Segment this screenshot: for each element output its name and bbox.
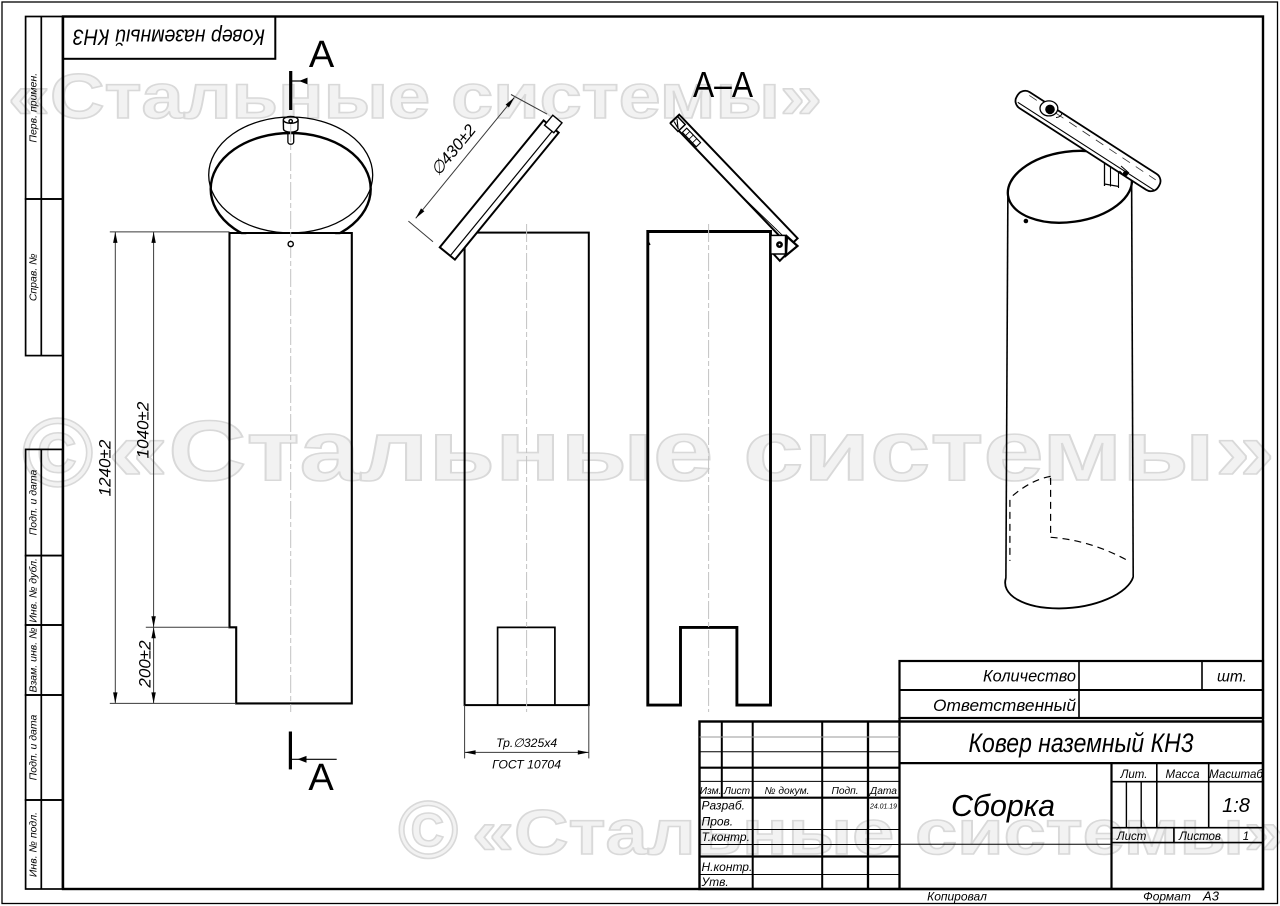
svg-text:1040±2: 1040±2: [134, 401, 153, 458]
svg-text:Инв. № дубл.: Инв. № дубл.: [27, 558, 39, 623]
svg-text:«Стальные системы»: «Стальные системы»: [108, 404, 1275, 499]
svg-text:Формат: Формат: [1143, 890, 1191, 904]
svg-text:Инв. № подл.: Инв. № подл.: [27, 812, 39, 877]
svg-text:Н.контр.: Н.контр.: [702, 860, 753, 874]
svg-text:Количество: Количество: [983, 667, 1076, 686]
svg-text:Утв.: Утв.: [701, 875, 729, 889]
svg-text:Справ. №: Справ. №: [27, 253, 39, 301]
svg-text:1: 1: [1243, 831, 1249, 843]
svg-text:1:8: 1:8: [1222, 795, 1250, 817]
svg-text:Дата: Дата: [869, 786, 897, 797]
svg-text:1240±2: 1240±2: [96, 439, 115, 496]
svg-text:©: ©: [398, 785, 458, 876]
svg-text:Копировал: Копировал: [927, 890, 987, 904]
svg-text:ГОСТ 10704: ГОСТ 10704: [492, 758, 561, 772]
svg-text:24.01.19: 24.01.19: [869, 802, 897, 811]
svg-text:Изм.: Изм.: [700, 786, 722, 797]
svg-text:Лит.: Лит.: [1120, 769, 1148, 781]
svg-text:Сборка: Сборка: [951, 788, 1055, 823]
svg-text:Ковер наземный КН3: Ковер наземный КН3: [969, 728, 1194, 758]
svg-text:Тр.∅325х4: Тр.∅325х4: [496, 736, 557, 750]
svg-text:Масса: Масса: [1165, 769, 1199, 781]
svg-text:Листов: Листов: [1178, 831, 1221, 843]
svg-text:Т.контр.: Т.контр.: [702, 830, 750, 844]
svg-text:А: А: [308, 757, 334, 799]
svg-text:Подп. и дата: Подп. и дата: [27, 714, 39, 780]
svg-text:шт.: шт.: [1217, 669, 1247, 686]
svg-text:Масштаб: Масштаб: [1209, 769, 1263, 781]
svg-text:Лист: Лист: [1116, 831, 1147, 843]
svg-text:Ковер наземный КН3: Ковер наземный КН3: [72, 25, 265, 50]
svg-text:Разраб.: Разраб.: [702, 799, 745, 813]
svg-text:Взам. инв. №: Взам. инв. №: [27, 628, 39, 693]
svg-text:№ докум.: № докум.: [765, 786, 810, 797]
svg-text:Лист: Лист: [723, 786, 751, 797]
svg-text:Пров.: Пров.: [702, 815, 734, 829]
svg-text:Подп.: Подп.: [831, 786, 858, 797]
svg-text:Подп. и дата: Подп. и дата: [27, 469, 39, 535]
svg-text:Перв. примен.: Перв. примен.: [27, 73, 39, 143]
svg-text:А: А: [309, 34, 335, 76]
svg-text:А–А: А–А: [693, 64, 753, 105]
svg-text:200±2: 200±2: [136, 640, 155, 689]
svg-text:А3: А3: [1202, 889, 1220, 904]
svg-text:Ответственный: Ответственный: [933, 696, 1077, 715]
